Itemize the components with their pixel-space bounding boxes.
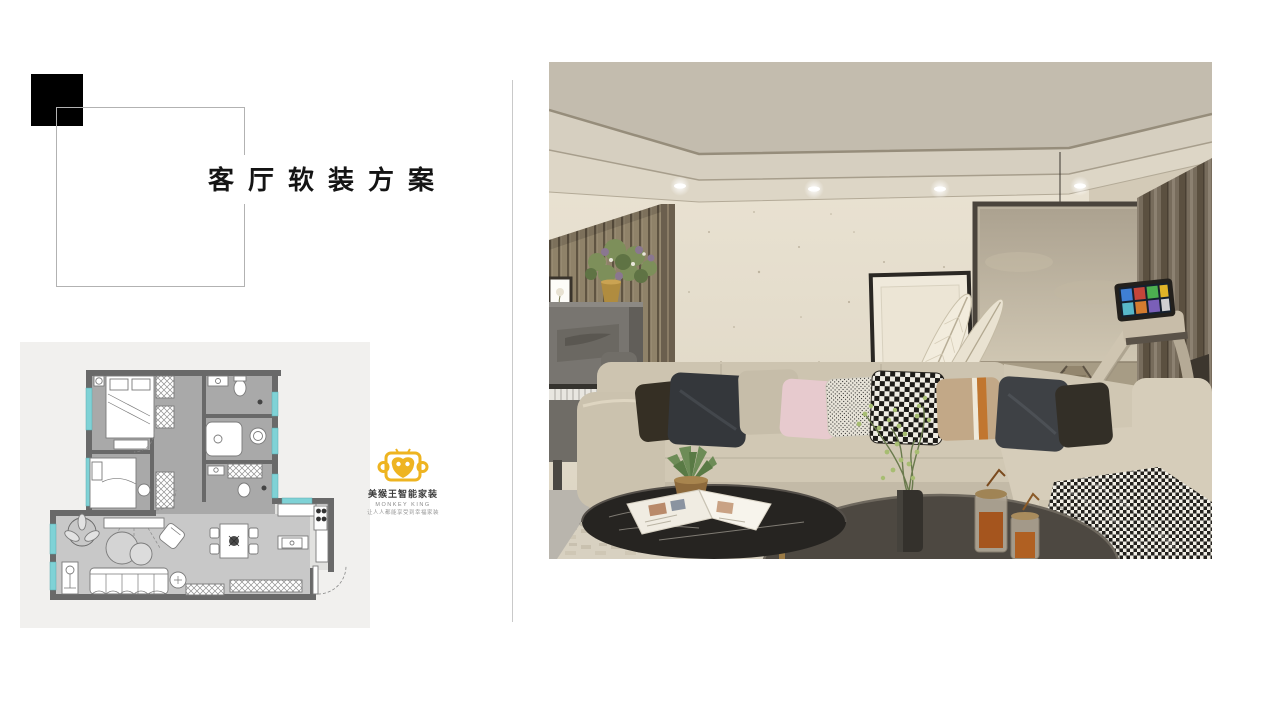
vertical-divider (512, 80, 513, 622)
living-room-render (549, 62, 1212, 559)
pillow-dark-olive-2 (1054, 382, 1113, 448)
brand-name-en: MONKEY KING (353, 501, 453, 510)
brand-tagline: 让人人都能享受到幸福家装 (353, 509, 453, 517)
treadmill-screen (1114, 278, 1176, 322)
page-title: 客厅软装方案 (196, 155, 458, 204)
brand-block: 美猴王智能家装 MONKEY KING 让人人都能享受到幸福家装 (353, 446, 453, 518)
ceiling (549, 62, 1212, 202)
brand-name-cn: 美猴王智能家装 (353, 489, 453, 501)
living-room-scene (549, 62, 1212, 559)
pillow-charcoal (667, 372, 749, 448)
sofa-pillows (634, 369, 1113, 452)
floor-plan-drawing (20, 342, 370, 628)
pillow-orange-stripe (936, 377, 1002, 441)
floor-plan-card (20, 342, 370, 628)
monkey-king-logo-icon (377, 446, 429, 486)
presentation-slide: { "slide": { "background": "#ffffff", "t… (0, 0, 1280, 720)
